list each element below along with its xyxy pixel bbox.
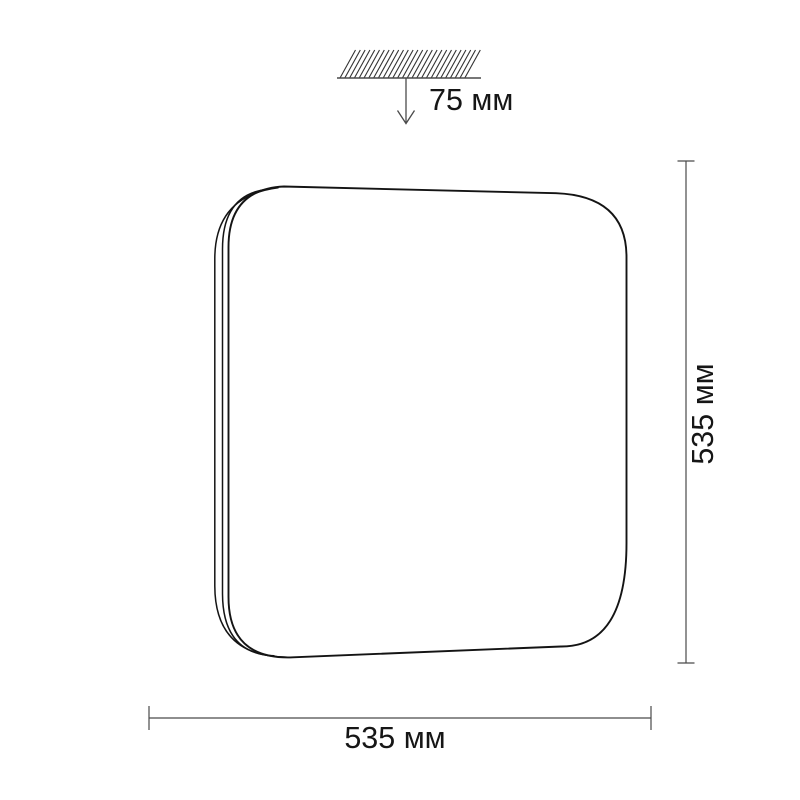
fixture-outline — [215, 187, 627, 658]
diagram-canvas: 75 мм 535 мм 535 мм — [0, 0, 800, 800]
ceiling-hatch-symbol — [340, 50, 480, 78]
width-label: 535 мм — [344, 721, 445, 755]
mount-depth-arrow-icon — [398, 79, 415, 124]
mount-depth-label: 75 мм — [429, 83, 513, 117]
fixture-back-contour-outer — [215, 188, 287, 657]
fixture-front-face — [229, 187, 627, 658]
dimension-diagram: 75 мм 535 мм 535 мм — [0, 0, 800, 800]
height-label: 535 мм — [686, 363, 720, 464]
ceiling-hatch-lines — [340, 50, 480, 78]
dimension-labels: 75 мм 535 мм 535 мм — [344, 83, 720, 755]
fixture-back-contour-middle — [223, 189, 275, 656]
